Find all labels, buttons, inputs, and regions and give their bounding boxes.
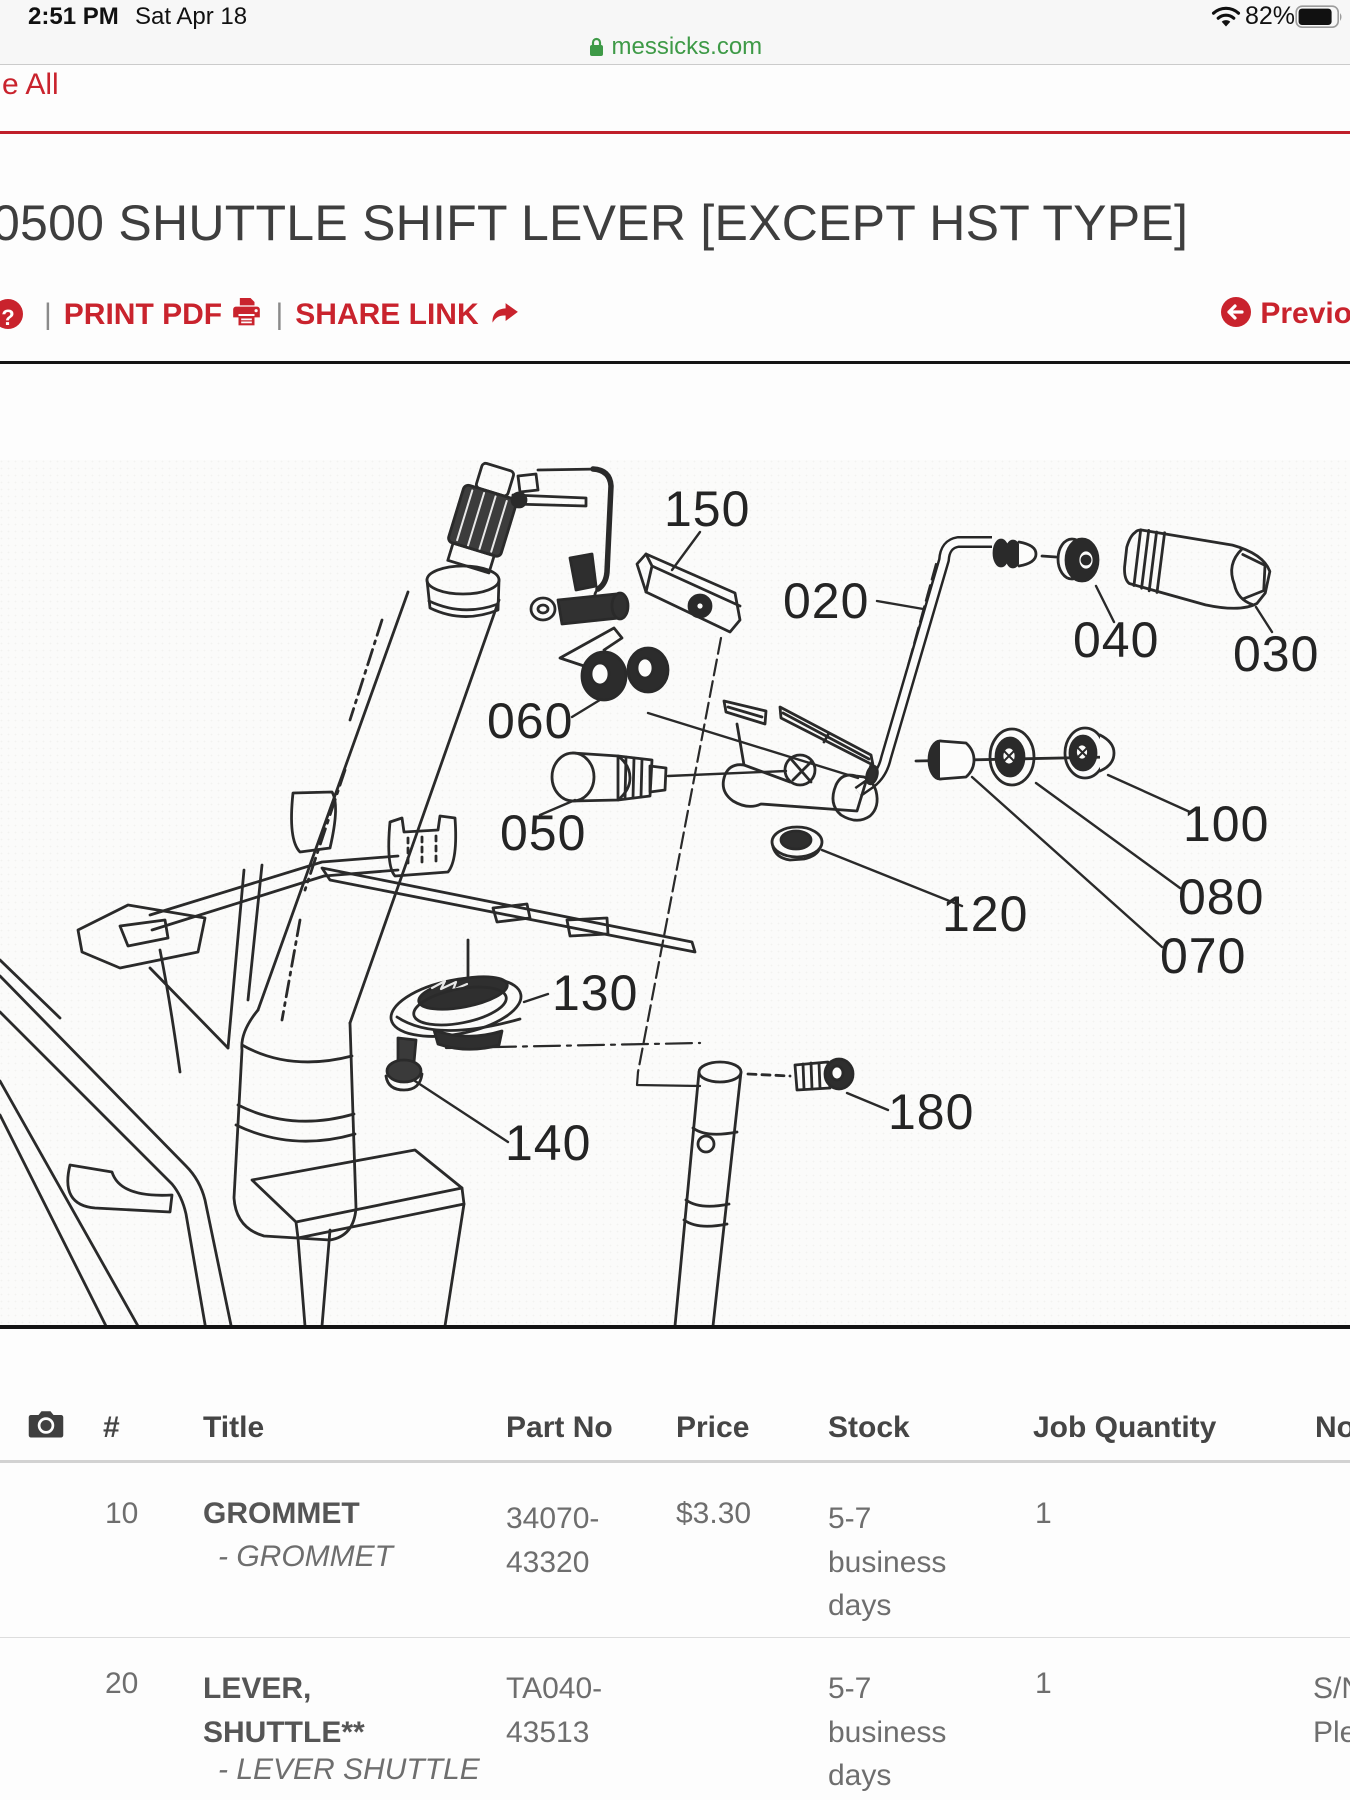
svg-text:140: 140	[505, 1115, 591, 1171]
svg-text:030: 030	[1233, 626, 1319, 682]
svg-text:040: 040	[1073, 612, 1159, 668]
svg-text:?: ?	[1, 305, 14, 330]
svg-text:070: 070	[1160, 928, 1246, 984]
svg-text:150: 150	[664, 481, 750, 537]
svg-text:020: 020	[783, 573, 869, 629]
svg-text:100: 100	[1183, 796, 1269, 852]
svg-text:120: 120	[942, 886, 1028, 942]
svg-text:180: 180	[888, 1084, 974, 1140]
svg-text:060: 060	[487, 693, 573, 749]
svg-text:080: 080	[1178, 869, 1264, 925]
svg-text:130: 130	[552, 965, 638, 1021]
